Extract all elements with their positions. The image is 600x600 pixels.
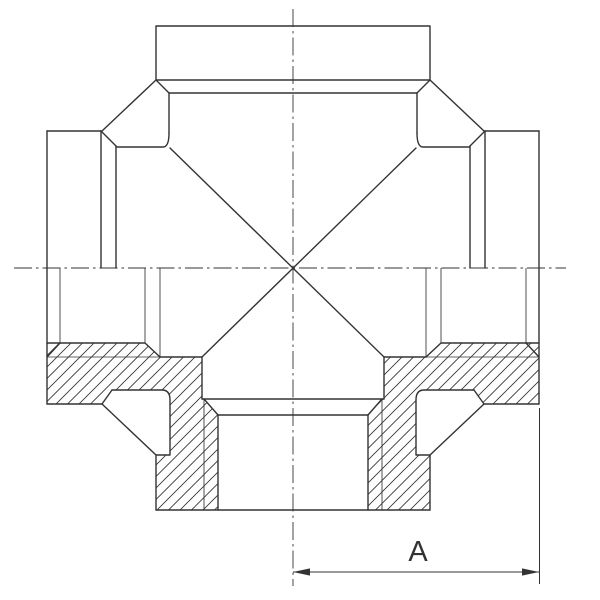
technical-drawing: A bbox=[0, 0, 600, 600]
technical-drawing-page: A bbox=[0, 0, 600, 600]
dimension-label: A bbox=[408, 536, 428, 568]
